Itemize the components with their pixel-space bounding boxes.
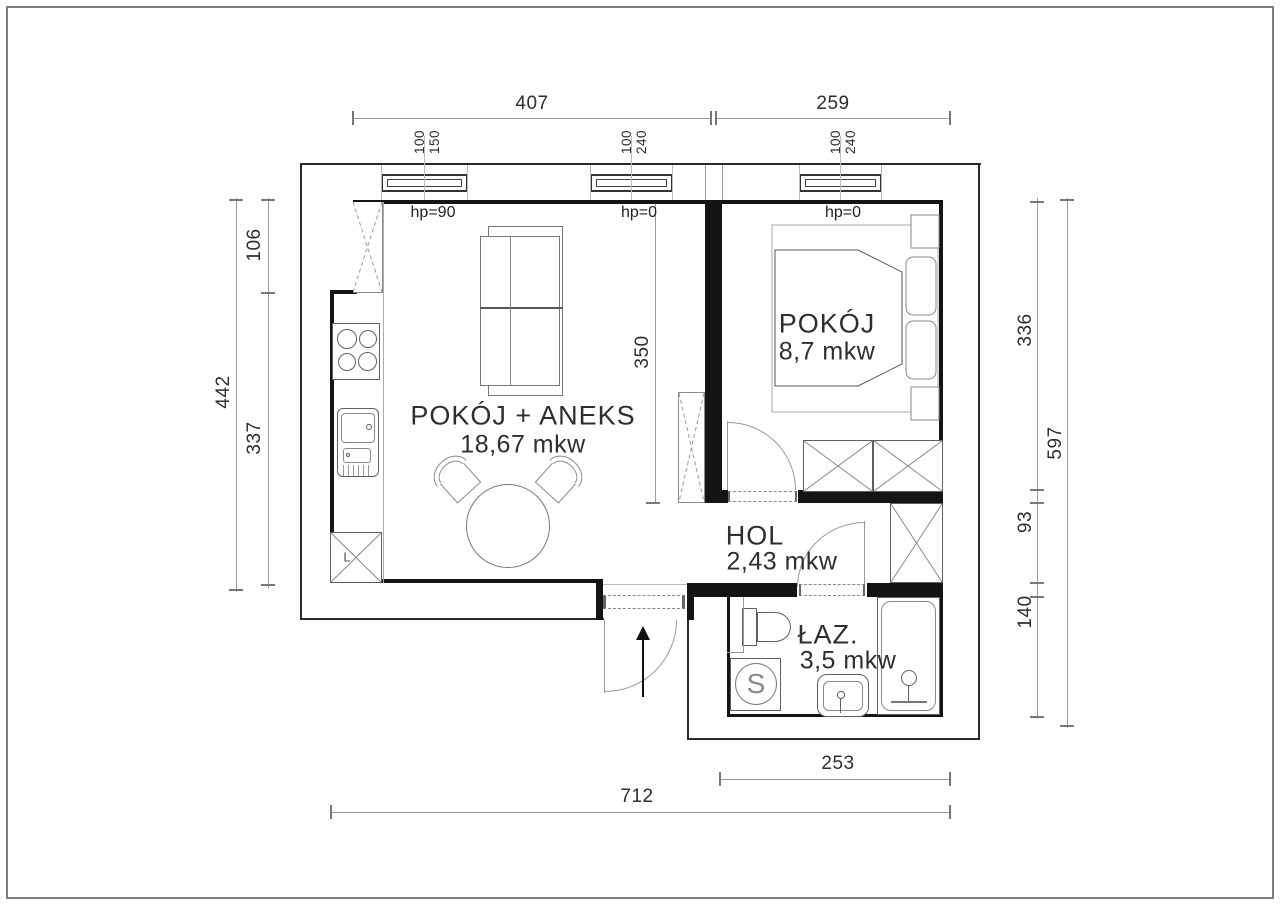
dim-right-bottom: 140 [1015, 595, 1037, 628]
corner-unit-label: L [343, 550, 350, 565]
window-size-label: 100240 [828, 130, 858, 154]
partition-living-bedroom [705, 200, 722, 503]
kitchen-corner-unit [330, 532, 382, 583]
sill-note: hp=0 [621, 204, 657, 222]
dim-left-upper: 106 [244, 228, 266, 261]
dim-top-right: 259 [816, 93, 849, 115]
dim-left-lower: 337 [244, 421, 266, 454]
room-area-living: 18,67 mkw [460, 431, 585, 460]
dim-living-depth: 350 [632, 335, 654, 368]
dim-bottom-inner: 253 [821, 753, 854, 775]
bedroom-wardrobe-left [803, 440, 873, 492]
bedroom-wardrobe-right [873, 440, 943, 492]
window-size-label: 100240 [619, 130, 649, 154]
room-label-bedroom: POKÓJ [779, 309, 876, 340]
kitchen-tall-cabinet [353, 202, 383, 293]
kitchen-counter-edge [383, 202, 384, 583]
hall-wardrobe [890, 503, 943, 583]
sill-note: hp=90 [411, 204, 456, 222]
dim-right-mid: 93 [1015, 511, 1037, 533]
room-area-hall: 2,43 mkw [727, 548, 838, 577]
dim-left-outer: 442 [213, 375, 235, 408]
window-size-label: 100150 [412, 130, 442, 154]
dining-table [466, 484, 550, 568]
living-wardrobe [678, 392, 705, 503]
room-area-bedroom: 8,7 mkw [779, 338, 876, 367]
room-label-living: POKÓJ + ANEKS [410, 401, 635, 432]
dim-bottom-outer: 712 [620, 786, 653, 808]
sill-note: hp=0 [825, 204, 861, 222]
floor-plan: L [0, 0, 1280, 905]
dim-top-left: 407 [515, 93, 548, 115]
room-area-bathroom: 3,5 mkw [800, 647, 897, 676]
dim-right-outer: 597 [1045, 426, 1067, 459]
dim-right-top: 336 [1015, 313, 1037, 346]
